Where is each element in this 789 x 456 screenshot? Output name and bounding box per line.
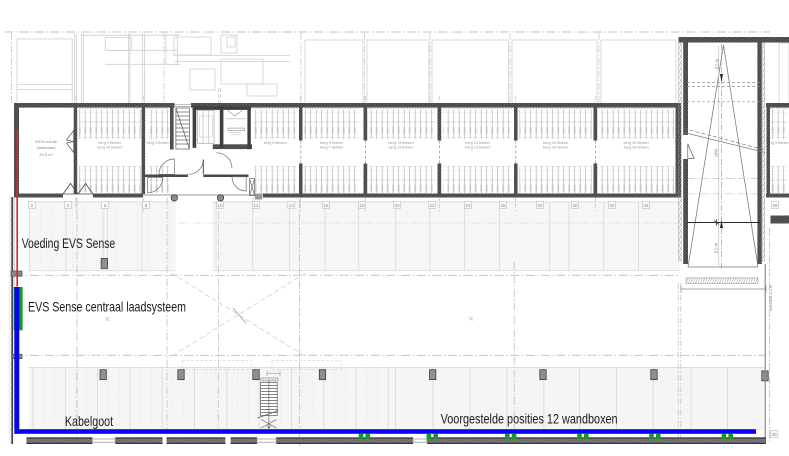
svg-text:20.5 m²: 20.5 m² [39, 152, 53, 157]
svg-text:EVS Sense centraal laadsysteem: EVS Sense centraal laadsysteem [28, 298, 186, 314]
svg-text:12: 12 [253, 203, 259, 208]
svg-text:Voorgestelde posities 12 wandb: Voorgestelde posities 12 wandboxen [441, 410, 618, 426]
svg-text:berg 26 fietsen: berg 26 fietsen [624, 145, 649, 149]
svg-text:inrit/uitrit 4.0 m: inrit/uitrit 4.0 m [768, 284, 773, 311]
svg-text:berg 13 fietsen: berg 13 fietsen [388, 145, 413, 149]
svg-text:(materiaal): (materiaal) [36, 145, 56, 150]
svg-text:WOS-ruimte: WOS-ruimte [35, 139, 58, 144]
svg-text:Kabelgoot: Kabelgoot [65, 413, 113, 429]
svg-text:36: 36 [772, 203, 778, 208]
svg-text:Voeding EVS Sense: Voeding EVS Sense [22, 235, 116, 251]
svg-text:berg 5 fietsen: berg 5 fietsen [146, 141, 169, 145]
svg-text:30: 30 [572, 203, 578, 208]
svg-text:berg 13 fietsen: berg 13 fietsen [465, 141, 490, 145]
svg-text:16%: 16% [714, 149, 719, 158]
svg-text:berg 10 fietsen: berg 10 fietsen [97, 145, 122, 149]
svg-text:10: 10 [217, 203, 223, 208]
svg-text:39: 39 [772, 432, 778, 437]
svg-text:34: 34 [643, 203, 649, 208]
svg-text:18: 18 [359, 203, 365, 208]
svg-text:32: 32 [609, 203, 615, 208]
svg-text:berg 13 fietsen: berg 13 fietsen [465, 145, 490, 149]
svg-text:8.5 m: 8.5 m [715, 58, 720, 69]
svg-text:14: 14 [289, 203, 295, 208]
svg-text:16: 16 [323, 203, 329, 208]
svg-text:berg 8 fietsen: berg 8 fietsen [264, 141, 287, 145]
svg-text:20: 20 [394, 203, 400, 208]
svg-text:berg 13 fietsen: berg 13 fietsen [388, 141, 413, 145]
svg-text:5.0 m: 5.0 m [714, 242, 719, 253]
svg-text:berg 9 fietsen: berg 9 fietsen [320, 141, 343, 145]
svg-text:berg 26 fietsen: berg 26 fietsen [624, 141, 649, 145]
svg-text:24: 24 [465, 203, 471, 208]
svg-text:berg 28 fietsen: berg 28 fietsen [543, 141, 568, 145]
svg-text:berg 9 fietsen: berg 9 fietsen [98, 141, 121, 145]
svg-text:berg 28 fietsen: berg 28 fietsen [543, 145, 568, 149]
svg-text:28: 28 [537, 203, 543, 208]
svg-text:berg 7 fietsen: berg 7 fietsen [320, 145, 343, 149]
svg-text:26: 26 [500, 203, 506, 208]
svg-text:22: 22 [429, 203, 435, 208]
